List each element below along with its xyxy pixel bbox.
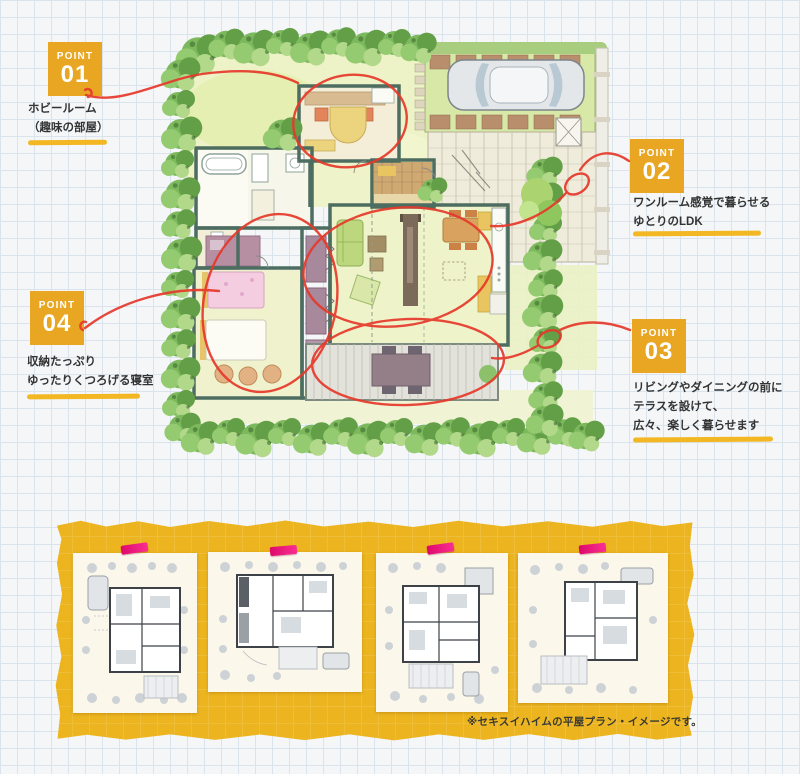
point-01-number: 01 [48, 63, 102, 87]
point-04-underline [27, 394, 140, 400]
point-03-underline [633, 437, 773, 443]
mini-floorplan-4 [525, 560, 661, 696]
point-03-label: リビングやダイニングの前に テラスを設けて、 広々、楽しく暮らせます [633, 379, 783, 436]
terrace [306, 344, 498, 400]
page: { "points": [ {"tag":"POINT","number":"0… [0, 0, 800, 774]
mini-floorplan-2 [215, 559, 355, 685]
point-03-number: 03 [632, 340, 686, 364]
point-02-number: 02 [630, 160, 684, 184]
point-01-underline [28, 140, 107, 146]
fence [594, 48, 610, 264]
car-icon [448, 60, 584, 110]
plan-thumbnail-3 [376, 553, 508, 712]
point-04-badge: POINT 04 [30, 291, 84, 345]
point-04-label: 収納たっぷり ゆったりくつろげる寝室 [27, 353, 154, 391]
floorplan-illustration [160, 22, 620, 474]
point-03-badge: POINT 03 [632, 319, 686, 373]
mini-floorplan-3 [383, 560, 501, 705]
point-02-badge: POINT 02 [630, 139, 684, 193]
point-01-label: ホビールーム （趣味の部屋） [28, 100, 109, 138]
point-04-number: 04 [30, 312, 84, 336]
plan-thumbnail-2 [208, 552, 362, 692]
point-02-label: ワンルーム感覚で暮らせる ゆとりのLDK [633, 194, 770, 232]
point-02-underline [633, 231, 761, 237]
mini-floorplan-1 [80, 560, 190, 706]
plan-thumbnail-1 [73, 553, 197, 713]
gallery-caption: ※セキスイハイムの平屋プラン・イメージです。 [467, 714, 702, 729]
plan-thumbnail-4 [518, 553, 668, 703]
point-01-badge: POINT 01 [48, 42, 102, 96]
